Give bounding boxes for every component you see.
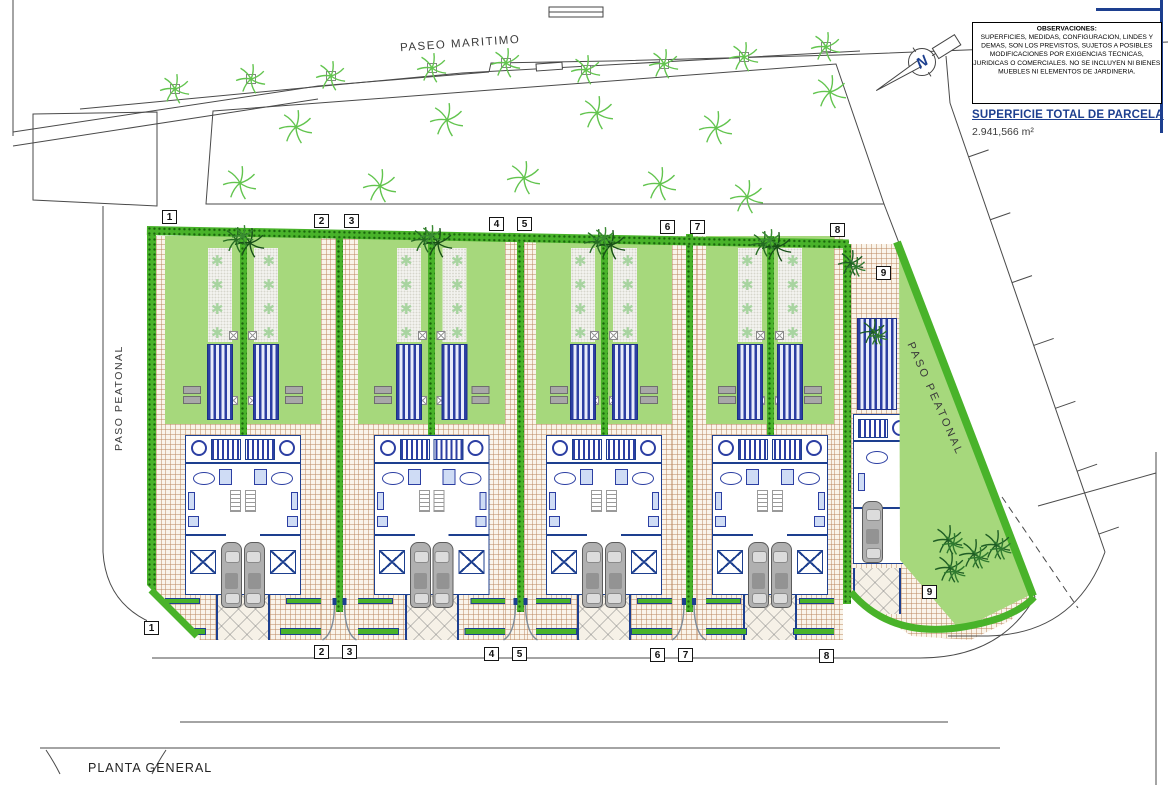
villa-unit: ✱✱✱✱ <box>243 236 330 640</box>
car-roof <box>775 573 788 589</box>
sun-lounger <box>718 386 736 394</box>
kitchen-unit <box>408 469 421 485</box>
shrub-icon: ✱ <box>741 302 754 317</box>
hedge-strip <box>799 598 835 604</box>
villa-floorplan <box>546 435 604 595</box>
paving-corner-marker <box>756 331 765 340</box>
wall-line <box>547 534 587 536</box>
stairs <box>230 490 241 512</box>
palm-tree-icon <box>571 55 600 84</box>
swimming-pool <box>777 344 803 420</box>
shrub-icon: ✱ <box>786 302 799 317</box>
terrace-table <box>468 440 484 456</box>
pergola-loungers <box>606 439 636 460</box>
car-roof <box>752 573 765 589</box>
car-windshield <box>752 551 767 563</box>
car <box>862 501 883 563</box>
plot-marker-6: 6 <box>650 648 665 662</box>
shrub-icon: ✱ <box>621 278 634 293</box>
villa-floorplan <box>853 414 951 564</box>
palm-tree-icon <box>160 74 189 103</box>
car-rear-window <box>586 593 601 604</box>
swimming-pool <box>441 344 467 420</box>
sofa <box>715 492 722 510</box>
terrace-table <box>279 440 295 456</box>
shrub-icon: ✱ <box>450 302 463 317</box>
car <box>771 542 792 608</box>
perimeter-paving <box>527 236 536 640</box>
observations-body: SUPERFICIES, MEDIDAS, CONFIGURACION, LIN… <box>973 34 1161 77</box>
total-parcel-area-value: 2.941,566 m² <box>972 126 1034 138</box>
bathroom-fixture <box>814 516 825 527</box>
palm-tree-icon <box>316 61 345 90</box>
kitchen-unit <box>443 469 456 485</box>
bed <box>270 550 296 574</box>
shrub-icon: ✱ <box>450 326 463 341</box>
sun-lounger <box>285 396 303 404</box>
car-roof <box>248 573 261 589</box>
car <box>582 542 603 608</box>
paving-corner-marker <box>418 331 427 340</box>
gravel-planting-strip: ✱✱✱✱ <box>571 248 595 342</box>
wall-line <box>621 534 661 536</box>
observations-box: OBSERVACIONES: SUPERFICIES, MEDIDAS, CON… <box>972 22 1162 104</box>
bathroom-fixture <box>476 516 487 527</box>
sun-lounger <box>804 396 822 404</box>
car-rear-window <box>607 593 622 604</box>
shrub-icon: ✱ <box>741 254 754 269</box>
street-label-paseo-maritimo: PASEO MARITIMO <box>400 34 521 54</box>
car-rear-window <box>435 593 450 604</box>
villa-unit: ✱✱✱✱ <box>770 236 843 640</box>
observations-title: OBSERVACIONES: <box>973 25 1161 34</box>
sun-lounger <box>374 396 392 404</box>
villa-floorplan <box>770 435 828 595</box>
villa-block: ✱✱✱✱✱✱✱✱ <box>349 236 514 640</box>
alley-hedge <box>686 234 693 612</box>
car-windshield <box>607 551 622 563</box>
shrub-icon: ✱ <box>400 278 413 293</box>
hedge-strip <box>464 628 506 635</box>
bathroom-fixture <box>377 516 388 527</box>
bed <box>459 550 485 574</box>
terrace-table <box>552 440 568 456</box>
alley-path <box>681 236 697 640</box>
gravel-planting-strip: ✱✱✱✱ <box>254 248 278 342</box>
sun-lounger <box>183 396 201 404</box>
sun-lounger <box>550 396 568 404</box>
bed <box>797 550 823 574</box>
car-rear-window <box>752 593 767 604</box>
terrace-table <box>806 440 822 456</box>
bathroom-fixture <box>715 516 726 527</box>
palm-tree-icon <box>417 53 446 82</box>
car-rear-window <box>225 593 240 604</box>
car-rear-window <box>773 593 788 604</box>
sun-lounger <box>718 396 736 404</box>
perimeter-paving <box>349 236 358 640</box>
car-windshield <box>414 551 429 563</box>
perimeter-paving <box>321 236 330 640</box>
hedge-strip <box>164 628 206 635</box>
wall-line <box>375 462 433 464</box>
villa-unit: ✱✱✱✱ <box>527 236 604 640</box>
kitchen-unit <box>918 449 932 465</box>
gravel-planting-strip: ✱✱✱✱ <box>778 248 802 342</box>
sofa <box>188 492 195 510</box>
palm-tree-icon <box>507 161 540 194</box>
perimeter-paving <box>834 236 843 640</box>
dining-table <box>554 472 576 485</box>
sofa <box>291 492 298 510</box>
perimeter-paving <box>156 236 165 640</box>
pergola-loungers <box>572 439 602 460</box>
shrub-icon: ✱ <box>741 326 754 341</box>
plot-marker-3: 3 <box>342 645 357 659</box>
bed <box>906 515 942 541</box>
dining-table <box>632 472 654 485</box>
dining-table <box>720 472 742 485</box>
sofa <box>652 492 659 510</box>
pergola-loungers <box>400 439 430 460</box>
shrub-icon: ✱ <box>574 254 587 269</box>
hedge-strip <box>705 598 741 604</box>
car-windshield <box>586 551 601 563</box>
stairs <box>419 490 430 512</box>
alley-hedge <box>336 234 343 612</box>
kitchen-unit <box>746 469 759 485</box>
dining-table <box>866 451 888 464</box>
terrace-table <box>892 420 908 436</box>
sun-lounger <box>640 386 658 394</box>
pergola-loungers <box>772 439 802 460</box>
sun-lounger <box>804 386 822 394</box>
wall-line <box>449 534 489 536</box>
plot-marker-9: 9 <box>922 585 937 599</box>
car-windshield <box>435 551 450 563</box>
parcel-west-hedge <box>147 232 156 598</box>
hedge-strip <box>357 598 393 604</box>
sun-lounger <box>471 396 489 404</box>
car-roof <box>437 573 450 589</box>
wall-line <box>431 462 489 464</box>
svg-text:N: N <box>913 52 932 73</box>
palm-tree-icon <box>729 42 758 71</box>
hedge-strip <box>705 628 747 635</box>
bathroom-fixture <box>549 516 560 527</box>
palm-tree-icon <box>279 110 312 143</box>
dining-table <box>460 472 482 485</box>
car-roof <box>866 529 879 544</box>
bed <box>551 550 577 574</box>
dining-table <box>798 472 820 485</box>
car-rear-window <box>246 593 261 604</box>
plot-marker-7: 7 <box>690 220 705 234</box>
car <box>221 542 242 608</box>
paving-corner-marker <box>248 331 257 340</box>
swimming-pool <box>737 344 763 420</box>
villa-unit: ✱✱✱✱ <box>432 236 515 640</box>
terrace-table <box>640 440 656 456</box>
palm-tree-icon <box>580 96 613 129</box>
stairs <box>904 475 915 497</box>
hedge-strip <box>535 628 577 635</box>
villa-unit: ✱✱✱✱ <box>697 236 770 640</box>
paving-corner-marker <box>437 331 446 340</box>
palm-tree-icon <box>699 111 732 144</box>
gravel-planting-strip: ✱✱✱✱ <box>397 248 421 342</box>
alley-path <box>514 236 527 640</box>
sun-lounger <box>550 386 568 394</box>
shrub-icon: ✱ <box>574 302 587 317</box>
plot-marker-9: 9 <box>876 266 891 280</box>
title-block-frame-top <box>1096 8 1162 11</box>
pergola-loungers <box>858 419 888 438</box>
car-windshield <box>866 509 881 521</box>
car <box>244 542 265 608</box>
bathroom-fixture <box>188 516 199 527</box>
sun-lounger <box>285 386 303 394</box>
swimming-pool <box>570 344 596 420</box>
terrace-table <box>718 440 734 456</box>
bathroom-fixture <box>648 516 659 527</box>
sofa <box>549 492 556 510</box>
plot-marker-4: 4 <box>489 217 504 231</box>
wall-line <box>375 534 415 536</box>
site-plan-canvas: ✱✱✱✱✱✱✱✱✱✱✱✱✱✱✱✱✱✱✱✱✱✱✱✱✱✱✱✱✱✱✱✱ N PASEO… <box>0 0 1170 785</box>
hedge-strip <box>535 598 571 604</box>
stairs <box>757 490 768 512</box>
hedge-strip <box>470 598 506 604</box>
sun-lounger <box>374 386 392 394</box>
kitchen-unit <box>580 469 593 485</box>
villa-unit: ✱✱✱✱ <box>156 236 243 640</box>
shrub-icon: ✱ <box>786 326 799 341</box>
shrub-icon: ✱ <box>450 278 463 293</box>
shrub-icon: ✱ <box>211 326 224 341</box>
sun-lounger <box>640 396 658 404</box>
swimming-pool <box>207 344 233 420</box>
plot-marker-5: 5 <box>517 217 532 231</box>
shrub-icon: ✱ <box>621 254 634 269</box>
shrub-icon: ✱ <box>400 302 413 317</box>
villa-floorplan <box>604 435 662 595</box>
shrub-icon: ✱ <box>262 254 275 269</box>
paving-corner-marker <box>229 331 238 340</box>
shrub-icon: ✱ <box>400 326 413 341</box>
gravel-planting-strip: ✱✱✱✱ <box>613 248 637 342</box>
villa-block: ✱✱✱✱✱✱✱✱ <box>527 236 681 640</box>
parcel-east-hedge <box>843 244 851 604</box>
perimeter-paving <box>505 236 514 640</box>
swimming-pool <box>857 318 897 410</box>
villa-block: ✱✱✱✱✱✱✱✱ <box>156 236 330 640</box>
bed <box>717 550 743 574</box>
car-rear-window <box>414 593 429 604</box>
pergola-loungers <box>738 439 768 460</box>
plot-marker-8: 8 <box>819 649 834 663</box>
shrub-icon: ✱ <box>211 278 224 293</box>
gravel-planting-strip: ✱✱✱✱ <box>442 248 466 342</box>
car-roof <box>414 573 427 589</box>
shrub-icon: ✱ <box>786 254 799 269</box>
plot-marker-5: 5 <box>512 647 527 661</box>
kitchen-unit <box>254 469 267 485</box>
wall-line <box>713 462 771 464</box>
driveway <box>853 568 901 614</box>
shrub-icon: ✱ <box>621 302 634 317</box>
alley-hedge <box>517 234 524 612</box>
palm-tree-icon <box>236 64 265 93</box>
palm-tree-icon <box>363 169 396 202</box>
sofa <box>480 492 487 510</box>
palm-tree-icon <box>643 167 676 200</box>
wall-line <box>186 462 244 464</box>
plot-marker-1: 1 <box>144 621 159 635</box>
car <box>605 542 626 608</box>
hedge-strip <box>637 598 673 604</box>
sofa <box>377 492 384 510</box>
villa-floorplan <box>374 435 432 595</box>
dining-table <box>193 472 215 485</box>
bed <box>379 550 405 574</box>
paving-corner-marker <box>609 331 618 340</box>
sun-lounger <box>471 386 489 394</box>
villa-unit: ✱✱✱✱ <box>349 236 432 640</box>
terrace-table <box>191 440 207 456</box>
wall-line <box>547 462 605 464</box>
total-parcel-area-label: SUPERFICIE TOTAL DE PARCELA <box>972 109 1164 121</box>
dining-table <box>382 472 404 485</box>
wall-line <box>713 534 753 536</box>
wall-line <box>787 534 827 536</box>
gravel-planting-strip: ✱✱✱✱ <box>208 248 232 342</box>
wall-line <box>769 462 827 464</box>
plot-marker-1: 1 <box>162 210 177 224</box>
swimming-pool <box>253 344 279 420</box>
shrub-icon: ✱ <box>741 278 754 293</box>
plot-marker-3: 3 <box>344 214 359 228</box>
plot-marker-2: 2 <box>314 645 329 659</box>
sofa <box>818 492 825 510</box>
street-label-paso-peatonal-left: PASO PEATONAL <box>113 359 125 451</box>
plot-marker-6: 6 <box>660 220 675 234</box>
sofa <box>858 473 865 491</box>
car-roof <box>586 573 599 589</box>
villa-floorplan <box>243 435 301 595</box>
perimeter-paving <box>672 236 681 640</box>
wall-line <box>186 534 226 536</box>
shrub-icon: ✱ <box>262 326 275 341</box>
plot-marker-2: 2 <box>314 214 329 228</box>
palm-tree-icon <box>649 49 678 78</box>
gravel-planting-strip: ✱✱✱✱ <box>738 248 762 342</box>
palm-tree-icon <box>223 166 256 199</box>
stairs <box>772 490 783 512</box>
shrub-icon: ✱ <box>262 302 275 317</box>
bed <box>631 550 657 574</box>
palm-tree-icon <box>813 75 846 108</box>
shrub-icon: ✱ <box>786 278 799 293</box>
shrub-icon: ✱ <box>450 254 463 269</box>
car <box>748 542 769 608</box>
shrub-icon: ✱ <box>574 278 587 293</box>
palm-tree-icon <box>730 180 763 213</box>
hedge-strip <box>286 598 322 604</box>
plot-marker-7: 7 <box>678 648 693 662</box>
wall-line <box>854 440 914 442</box>
car-roof <box>225 573 238 589</box>
car-windshield <box>246 551 261 563</box>
shrub-icon: ✱ <box>621 326 634 341</box>
villa-unit: ✱✱✱✱ <box>604 236 681 640</box>
wall-line <box>260 534 300 536</box>
hedge-strip <box>280 628 322 635</box>
shrub-icon: ✱ <box>262 278 275 293</box>
shrub-icon: ✱ <box>400 254 413 269</box>
palm-tree-icon <box>811 32 840 61</box>
pergola-loungers <box>245 439 275 460</box>
wall-line <box>242 462 300 464</box>
villa-block: ✱✱✱✱✱✱✱✱ <box>697 236 843 640</box>
villa-floorplan <box>712 435 770 595</box>
pergola-loungers <box>211 439 241 460</box>
paving-corner-marker <box>590 331 599 340</box>
car <box>433 542 454 608</box>
pergola-loungers <box>434 439 464 460</box>
hedge-strip <box>793 628 835 635</box>
stairs <box>434 490 445 512</box>
shrub-icon: ✱ <box>211 254 224 269</box>
swimming-pool <box>612 344 638 420</box>
palm-tree-icon <box>491 48 520 77</box>
stairs <box>606 490 617 512</box>
plot-marker-8: 8 <box>830 223 845 237</box>
stairs <box>245 490 256 512</box>
wall-line <box>603 462 661 464</box>
drawing-title: PLANTA GENERAL <box>88 761 212 775</box>
plot-marker-4: 4 <box>484 647 499 661</box>
corner-villa-9-plot <box>851 244 1035 644</box>
hedge-strip <box>631 628 673 635</box>
terrace-table <box>380 440 396 456</box>
bed <box>190 550 216 574</box>
hedge-strip <box>357 628 399 635</box>
stairs <box>591 490 602 512</box>
kitchen-unit <box>781 469 794 485</box>
swimming-pool <box>396 344 422 420</box>
bathroom-fixture <box>287 516 298 527</box>
hedge-strip <box>164 598 200 604</box>
car-rear-window <box>866 548 881 559</box>
alley-path <box>330 236 349 640</box>
villa-floorplan <box>185 435 243 595</box>
shrub-icon: ✱ <box>211 302 224 317</box>
paving-corner-marker <box>775 331 784 340</box>
car-windshield <box>225 551 240 563</box>
palm-tree-icon <box>430 103 463 136</box>
car <box>410 542 431 608</box>
shrub-icon: ✱ <box>574 326 587 341</box>
car-windshield <box>773 551 788 563</box>
kitchen-unit <box>615 469 628 485</box>
dining-table <box>271 472 293 485</box>
car-roof <box>609 573 622 589</box>
villa-floorplan <box>432 435 490 595</box>
kitchen-unit <box>219 469 232 485</box>
sun-lounger <box>183 386 201 394</box>
perimeter-paving <box>697 236 706 640</box>
